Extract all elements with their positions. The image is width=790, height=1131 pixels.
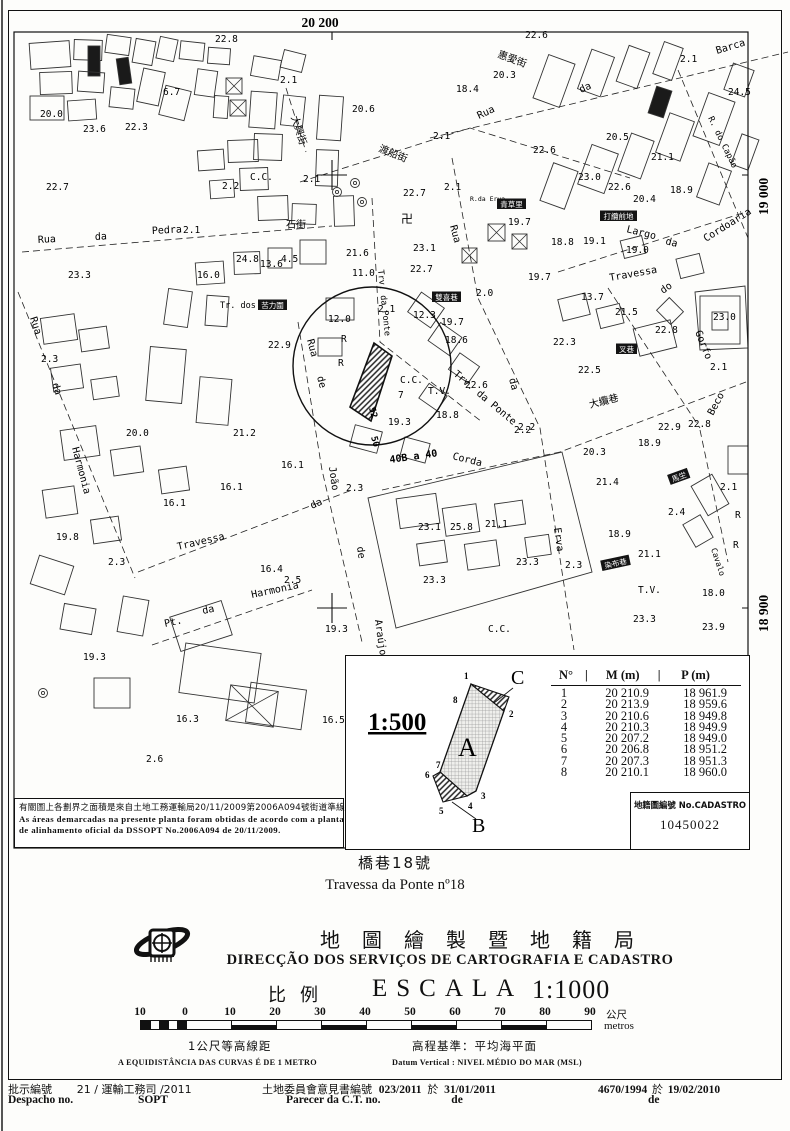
coordinate-table-header: N°| M (m)| P (m) — [551, 668, 741, 686]
plan-title-zh: 橋巷18號 — [0, 852, 790, 873]
zone-label-A: A — [458, 733, 477, 762]
vertex-label: 4 — [468, 801, 473, 811]
plan-title-pt: Travessa da Ponte nº18 — [0, 877, 790, 894]
inset-scale-label: 1:500 — [368, 709, 426, 736]
scale-row: 比例 ESCALA 1:1000 — [0, 975, 790, 1009]
scalebar: 100102030405060708090 公尺 metros — [134, 1006, 674, 1034]
vertex-label: 1 — [464, 671, 469, 681]
zone-label-C: C — [511, 667, 524, 689]
dscc-logo-icon — [134, 918, 194, 970]
scalebar-tick: 90 — [584, 1006, 596, 1018]
note-line-zh: 有關圖上各劃界之面積是來自土地工務運輸局20/11/2009第2006A094號… — [19, 801, 339, 813]
cadastro-number: 10450022 — [631, 817, 749, 833]
process-de: de — [648, 1094, 660, 1106]
process-date: 19/02/2010 — [668, 1084, 720, 1096]
cadastral-plan-page: 卍 20 200 19 000 18 900 22.82.120.023.622… — [0, 0, 790, 1131]
scalebar-unit-pt: metros — [604, 1020, 634, 1032]
vertex-label: 5 — [439, 806, 444, 816]
vertex-label: 2 — [509, 709, 514, 719]
parecer-de: de — [451, 1094, 463, 1106]
note-line-pt1: As áreas demarcadas na presente planta f… — [19, 814, 339, 824]
vertex-label: 3 — [481, 791, 486, 801]
scale-label-zh: 比例 — [268, 981, 332, 1007]
vertex-label: 8 — [453, 695, 458, 705]
scale-value: 1:1000 — [532, 975, 610, 1005]
datum-note-zh: 高程基準：平均海平面 — [412, 1038, 537, 1054]
vertex-label: 6 — [425, 770, 430, 780]
inset-diagram: 1:500 12345678ABC — [346, 656, 546, 847]
contour-note-pt: A EQUIDISTÂNCIA DAS CURVAS É DE 1 METRO — [118, 1058, 317, 1067]
agency-name-pt: DIRECÇÃO DOS SERVIÇOS DE CARTOGRAFIA E C… — [205, 952, 695, 969]
zone-label-B: B — [472, 815, 485, 837]
datum-note-pt: Datum Vertical : NIVEL MÉDIO DO MAR (MSL… — [392, 1058, 582, 1067]
scalebar-tick: 0 — [182, 1006, 188, 1018]
process-value: 4670/1994 — [598, 1084, 647, 1096]
vertex-label: 7 — [436, 760, 441, 770]
scale-label-pt: ESCALA — [372, 975, 523, 1003]
scalebar-tick: 50 — [404, 1006, 416, 1018]
note-line-pt2: de alinhamento oficial da DSSOPT No.2006… — [19, 825, 339, 835]
table-row: 820 210.118 960.0 — [551, 767, 741, 778]
scalebar-tick: 10 — [134, 1006, 146, 1018]
parecer-label-pt: Parecer da C.T. no. — [286, 1094, 381, 1106]
despacho-value2: SOPT — [138, 1094, 168, 1106]
cadastro-label: 地籍圖編號 No.CADASTRO — [631, 799, 749, 811]
inset-box: 1:500 12345678ABC N°| M (m)| — [345, 655, 750, 850]
coordinate-table: N°| M (m)| P (m) 120 210.918 961.9220 21… — [551, 668, 741, 778]
scalebar-tick: 30 — [314, 1006, 326, 1018]
scalebar-tick: 60 — [449, 1006, 461, 1018]
scalebar-tick: 20 — [269, 1006, 281, 1018]
contour-note-zh: 1公尺等高線距 — [188, 1038, 271, 1054]
despacho-label-pt: Despacho no. — [8, 1094, 73, 1106]
agency-name-zh: 地圖繪製暨地籍局 — [320, 924, 656, 953]
scalebar-bar — [140, 1020, 592, 1030]
scalebar-tick: 80 — [539, 1006, 551, 1018]
cadastro-box: 地籍圖編號 No.CADASTRO 10450022 — [630, 792, 750, 850]
agency-block: 地圖繪製暨地籍局 DIRECÇÃO DOS SERVIÇOS DE CARTOG… — [0, 918, 790, 970]
scalebar-tick: 70 — [494, 1006, 506, 1018]
scalebar-tick: 10 — [224, 1006, 236, 1018]
note-box: 有關圖上各劃界之面積是來自土地工務運輸局20/11/2009第2006A094號… — [14, 798, 344, 848]
scalebar-tick: 40 — [359, 1006, 371, 1018]
